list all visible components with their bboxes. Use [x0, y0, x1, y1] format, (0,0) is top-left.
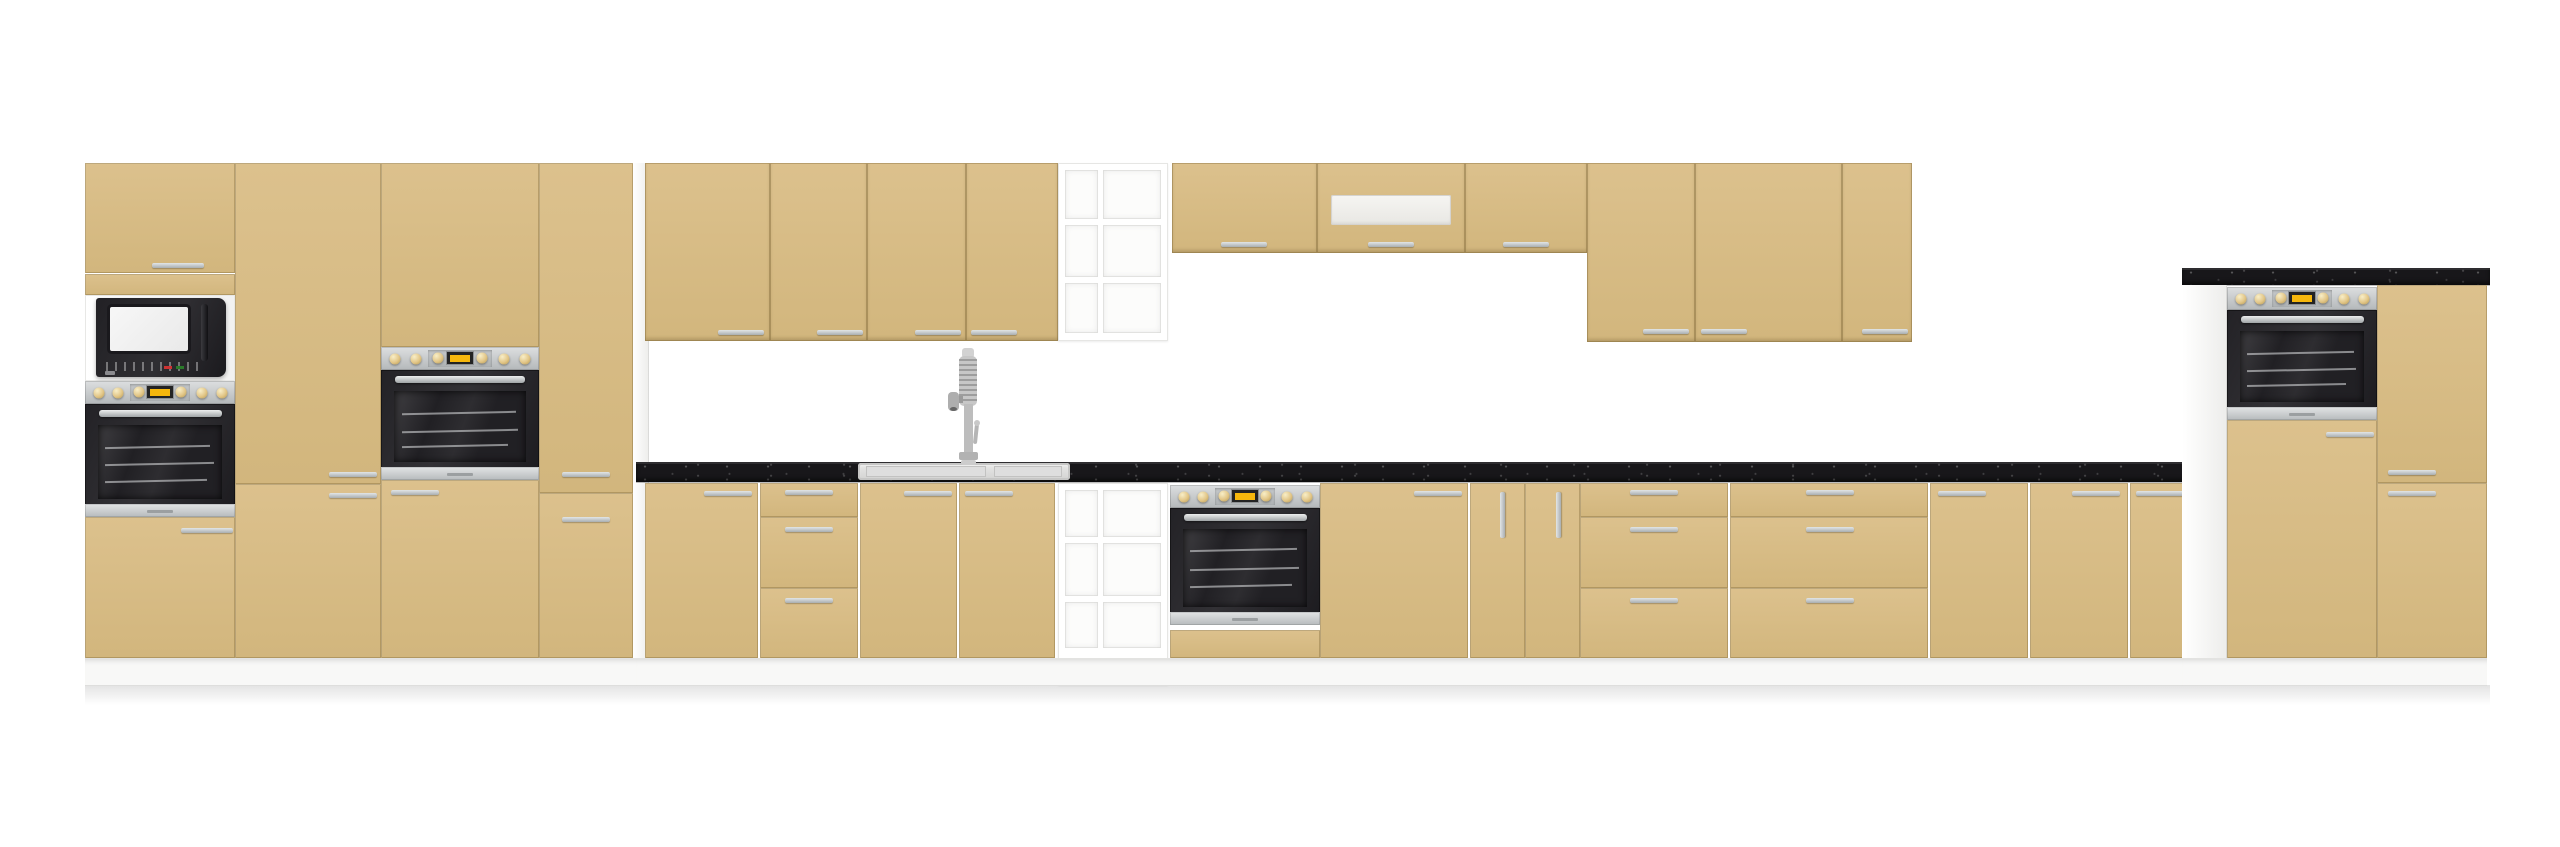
oven-knob [519, 353, 530, 364]
drawer-stack [760, 483, 858, 658]
oven-knob [1261, 491, 1272, 502]
oven-display [147, 386, 173, 398]
cabinet-handle [329, 472, 377, 477]
oven-knob [410, 353, 421, 364]
oven-display [447, 352, 473, 364]
oven-knob [2276, 293, 2287, 304]
kitchen-set-render [0, 0, 2560, 847]
shelf-cubby [1065, 490, 1098, 537]
base-narrow-door [1470, 483, 1525, 658]
shelf-cubby [1065, 170, 1098, 219]
drawer-handle [785, 527, 833, 532]
cabinet-handle [181, 528, 233, 533]
drawer-handle [785, 490, 833, 495]
oven-brand-mark [2289, 413, 2315, 416]
cabinet-handle [1938, 491, 1986, 496]
oven-control-panel [381, 347, 539, 370]
shelf-cubby [1065, 543, 1098, 596]
drawer-front [1730, 483, 1928, 517]
oven-rack [1190, 548, 1297, 552]
cabinet-handle [1500, 492, 1505, 538]
built-in-oven [1170, 508, 1320, 625]
oven-knob [134, 387, 145, 398]
plinth [636, 658, 2233, 686]
microwave-window [110, 307, 188, 351]
shelf-cubby [1103, 602, 1161, 648]
oven-knob [113, 387, 124, 398]
wall-cabinet-door [966, 163, 1058, 341]
oven-display [1232, 490, 1258, 502]
cabinet-handle [1503, 242, 1549, 247]
oven-knob [477, 353, 488, 364]
oven-rack [2247, 368, 2356, 372]
built-in-oven [381, 370, 539, 480]
cabinet-handle [562, 517, 610, 522]
oven-glass [1183, 529, 1307, 607]
cabinet-door [85, 163, 235, 273]
cabinet-handle [704, 491, 752, 496]
worktop-right [2182, 268, 2490, 285]
right-section-side-panel [2182, 285, 2227, 658]
oven-knob [93, 387, 104, 398]
microwave-logo [105, 371, 115, 375]
drawer-stack [1730, 483, 1928, 658]
tall-cabinet-door-upper [539, 163, 633, 493]
oven-rack [105, 462, 214, 466]
oven-knob [499, 353, 510, 364]
base-cabinet-door [1930, 483, 2028, 658]
cabinet-handle [1701, 329, 1747, 334]
drawer-front [760, 588, 858, 658]
drawer-front [1580, 483, 1728, 517]
drawer-front [760, 483, 858, 517]
oven-control-inset [2272, 290, 2332, 306]
oven-rack [2247, 351, 2354, 355]
cabinet-handle [2388, 470, 2436, 475]
oven-door-handle [1184, 514, 1307, 521]
oven-control-panel [85, 381, 235, 404]
oven-bottom-strip [2227, 407, 2377, 420]
microwave-handle [201, 304, 208, 361]
cabinet-handle [329, 493, 377, 498]
wall-cabinet-door [1695, 163, 1842, 342]
oven-knob [432, 353, 443, 364]
wall-cabinet-door [1172, 163, 1317, 253]
oven-door-handle [395, 376, 525, 383]
cabinet-handle [817, 330, 863, 335]
cabinet-door [381, 480, 539, 658]
oven-knob [1178, 491, 1189, 502]
oven-knob [216, 387, 227, 398]
drawer-front [760, 517, 858, 588]
wall-cabinet-door [770, 163, 867, 341]
pantry-door-lower [235, 484, 381, 658]
cabinet-handle [1643, 329, 1689, 334]
oven-glass [98, 425, 222, 499]
sink-base-door [860, 483, 957, 658]
drawer-handle [785, 598, 833, 603]
tall-cabinet-top-panel [381, 163, 539, 347]
cabinet-handle [2326, 432, 2374, 437]
tall-cabinet-door-lower [2377, 483, 2487, 658]
oven-display [2289, 292, 2315, 304]
oven-rack [105, 479, 207, 483]
shelf-cubby [1103, 543, 1161, 596]
extractor-hood-cabinet [1317, 163, 1465, 253]
drawer-handle [1630, 490, 1678, 495]
drawer-front [1580, 588, 1728, 658]
oven-knob [2318, 293, 2329, 304]
oven-rack [105, 445, 210, 449]
shelf-cubby [1065, 283, 1098, 333]
cabinet-handle [562, 472, 610, 477]
plinth [2182, 658, 2487, 686]
microwave-control-strip [106, 362, 200, 371]
microwave-indicator-lights [164, 366, 172, 369]
oven-control-inset [1215, 488, 1275, 504]
built-in-oven [2227, 310, 2377, 420]
oven-bottom-strip [1170, 612, 1320, 625]
oven-control-inset [428, 350, 491, 366]
wall-cabinet-door [867, 163, 966, 341]
drawer-handle [1630, 527, 1678, 532]
oven-control-panel [2227, 287, 2377, 310]
oven-door-handle [99, 410, 222, 417]
oven-knob [176, 387, 187, 398]
sink-drainer [994, 466, 1062, 477]
cabinet-handle [2072, 491, 2120, 496]
cabinet-door [85, 517, 235, 658]
faucet [928, 346, 998, 468]
oven-glass [394, 391, 526, 462]
oven-knob [197, 387, 208, 398]
oven-knob [1198, 491, 1209, 502]
tall-cabinet-door-lower [2227, 420, 2377, 658]
oven-bottom-strip [85, 504, 235, 517]
cabinet-handle [1414, 491, 1462, 496]
oven-rack [2247, 383, 2346, 387]
oven-door-handle [2241, 316, 2364, 323]
drawer-stack [1580, 483, 1728, 658]
oven-rack [402, 411, 516, 415]
right-tall-section [0, 0, 1, 1]
cabinet-handle [2136, 491, 2184, 496]
oven-control-inset [130, 384, 190, 400]
cabinet-handle [2388, 491, 2436, 496]
sink-base-door [959, 483, 1055, 658]
drawer-front [1580, 517, 1728, 588]
oven-knob [1282, 491, 1293, 502]
oven-knob [2339, 293, 2350, 304]
oven-rack [402, 429, 518, 433]
tall-cabinet-front-upper [2377, 285, 2487, 483]
oven-brand-mark [1232, 618, 1258, 621]
wall-cabinet-door [1842, 163, 1912, 342]
shelf-cubby [1103, 170, 1161, 219]
base-cabinet-door [1320, 483, 1468, 658]
drawer-handle [1806, 598, 1854, 603]
cabinet-handle [971, 330, 1017, 335]
oven-knob [2358, 293, 2369, 304]
base-narrow-door [1525, 483, 1580, 658]
base-cabinet-door [2030, 483, 2128, 658]
wall-cabinet-door [645, 163, 770, 341]
microwave [96, 298, 226, 377]
extractor-vent-strip [1331, 195, 1451, 225]
shelf-cubby [1065, 225, 1098, 277]
oven-knob [390, 353, 401, 364]
cabinet-handle [1221, 242, 1267, 247]
drawer-handle [1630, 598, 1678, 603]
shelf-cubby [1103, 490, 1161, 537]
open-shelf-upper [1058, 163, 1168, 341]
oven-bottom-strip [381, 467, 539, 480]
shelf-cubby [1065, 602, 1098, 648]
oven-knob [1219, 491, 1230, 502]
drawer-handle [1806, 490, 1854, 495]
floor-shadow [85, 685, 2490, 705]
cabinet-handle [1556, 492, 1561, 538]
oven-brand-mark [147, 510, 173, 513]
oven-knob [2255, 293, 2266, 304]
wall-cabinet-door [1465, 163, 1587, 253]
cabinet-handle [1368, 242, 1414, 247]
shelf-cubby [1103, 283, 1161, 333]
oven-base-drawer [1170, 630, 1320, 658]
fixed-front-strip [85, 274, 235, 295]
drawer-front [1730, 588, 1928, 658]
oven-brand-mark [447, 473, 473, 476]
pantry-door-upper [235, 163, 381, 484]
plinth [85, 658, 649, 686]
built-in-oven [85, 404, 235, 517]
base-cabinet-door [645, 483, 758, 658]
drawer-front [1730, 517, 1928, 588]
oven-control-panel [1170, 485, 1320, 508]
oven-knob [2235, 293, 2246, 304]
cabinet-handle [915, 330, 961, 335]
cabinet-handle [718, 330, 764, 335]
drawer-handle [1806, 527, 1854, 532]
cabinet-handle [965, 491, 1013, 496]
cabinet-handle [152, 263, 204, 268]
open-shelf-lower [1058, 483, 1168, 685]
tall-cabinet-door-lower [539, 493, 633, 658]
oven-rack [402, 444, 508, 448]
cabinet-handle [904, 491, 952, 496]
cabinet-handle [1862, 329, 1908, 334]
cabinet-handle [391, 490, 439, 495]
oven-rack [1190, 584, 1292, 588]
shelf-cubby [1103, 225, 1161, 277]
oven-knob [1301, 491, 1312, 502]
oven-glass [2240, 331, 2364, 402]
wall-cabinet-door [1587, 163, 1695, 342]
oven-rack [1190, 567, 1299, 571]
